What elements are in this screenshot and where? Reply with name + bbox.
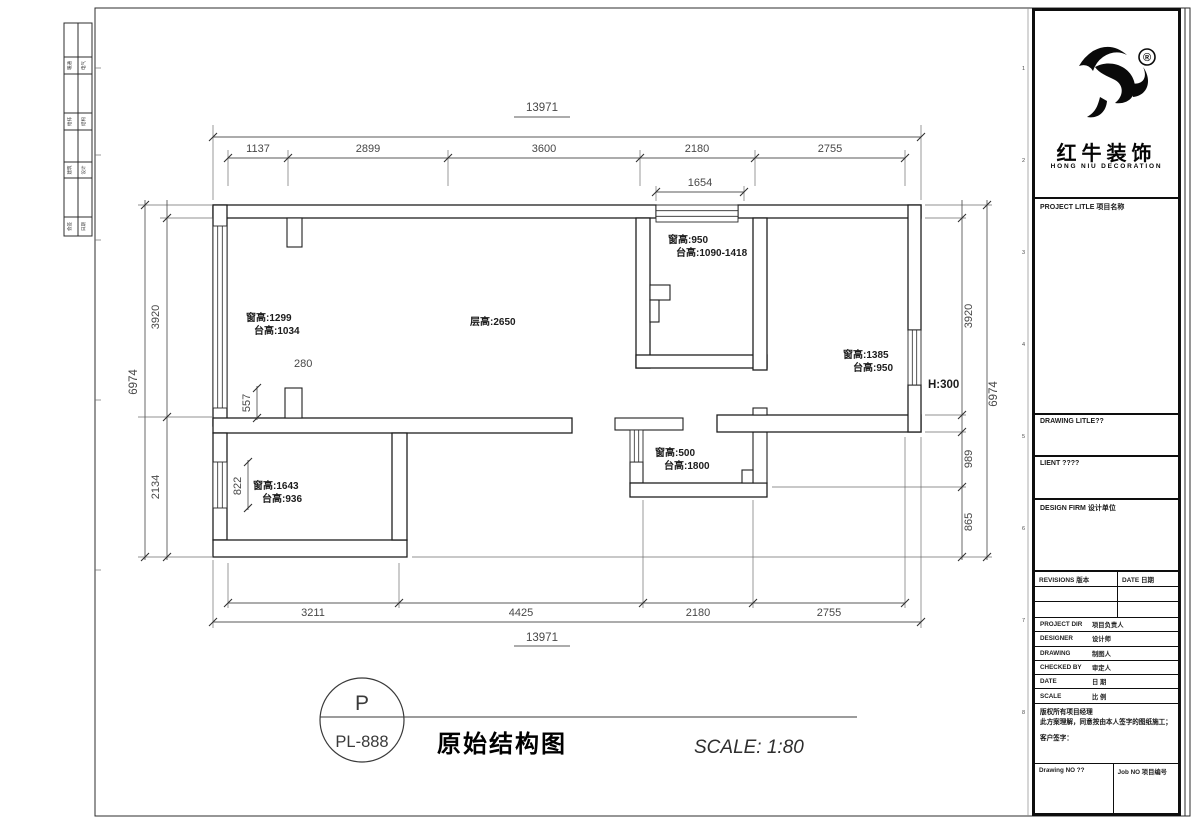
footer: P PL-888 原始结构图 SCALE: 1:80 — [320, 678, 857, 762]
dim-bottom-overall: 13971 — [526, 632, 558, 644]
dim-right-inner: 989 — [963, 450, 975, 468]
registered-mark: ® — [1143, 52, 1151, 64]
floor-plan-walls — [213, 205, 921, 557]
edge-number: 8 — [1022, 710, 1025, 716]
dim-left-inner: 2134 — [150, 475, 162, 499]
dim-top-seg: 2899 — [356, 143, 380, 155]
personnel-row: PROJECT DIR 项目负责人 — [1035, 617, 1178, 631]
annotation-sill: 台高:1090-1418 — [676, 246, 748, 259]
personnel-label-en: PROJECT DIR — [1035, 621, 1092, 628]
page: { "sheet": { "edge_numbers": ["1","2","3… — [0, 0, 1200, 824]
personnel-label-en: SCALE — [1035, 693, 1092, 700]
personnel-row: DATE 日 期 — [1035, 674, 1178, 688]
personnel-row: DRAWING 制图人 — [1035, 646, 1178, 660]
dim-bottom-seg: 4425 — [509, 607, 533, 619]
dimensions-left: 3920 2134 6974 — [128, 200, 212, 561]
strip-cell: 暖通 — [66, 61, 73, 70]
personnel-label-cn: 日 期 — [1092, 677, 1178, 686]
annotation-sill: 台高:936 — [262, 492, 302, 505]
window-symbol-left-upper — [213, 226, 227, 408]
dim-top-seg: 3600 — [532, 143, 556, 155]
personnel-label-en: DRAWING — [1035, 650, 1092, 657]
brand-name-en: HONG NIU DECORATION — [1035, 163, 1178, 170]
strip-cell: 给排 — [66, 117, 73, 126]
bull-logo-icon: ® — [1055, 45, 1165, 130]
strip-cell: 建筑 — [66, 165, 73, 174]
revisions-date-header: DATE 日期 — [1118, 572, 1178, 586]
stair-step — [650, 300, 659, 322]
window-symbol-top — [656, 205, 738, 222]
personnel-label-cn: 设计师 — [1092, 634, 1178, 643]
personnel-label-en: DESIGNER — [1035, 635, 1092, 642]
annotation-window: 窗高:1299 — [246, 311, 292, 324]
plan-annotations: 窗高:1299 台高:1034 层高:2650 窗高:950 台高:1090-1… — [246, 233, 959, 505]
dim-left-inner: 3920 — [150, 305, 162, 329]
title-mark-letter: P — [355, 692, 369, 715]
drawing-title-section: DRAWING LITLE?? — [1035, 413, 1178, 455]
annotation-window: 窗高:950 — [668, 233, 708, 246]
drawing-canvas: 暖通 电气 给排 结构 建筑 设计 会签 日期 1 2 3 4 5 6 7 8 — [0, 0, 1200, 824]
drawing-number-row: Drawing NO ?? Job NO 项目编号 — [1035, 763, 1178, 813]
dim-top-overall: 13971 — [526, 102, 558, 114]
revision-row-empty — [1035, 602, 1118, 617]
revisions-header: REVISIONS 版本 — [1035, 572, 1118, 586]
strip-cell: 会签 — [66, 222, 73, 231]
dim-top-sub: 1654 — [688, 177, 712, 189]
dim-bottom-seg: 2180 — [686, 607, 710, 619]
edge-number: 4 — [1022, 342, 1025, 348]
dim-right-outer: 6974 — [988, 381, 1000, 407]
dim-bottom-seg: 2755 — [817, 607, 841, 619]
copyright-line1: 版权所有项目经理 — [1040, 708, 1173, 718]
annotation-sill: 台高:1800 — [664, 459, 710, 472]
job-no: Job NO 项目编号 — [1114, 764, 1178, 813]
window-symbol-left-lower — [213, 462, 227, 508]
personnel-label-en: DATE — [1035, 678, 1092, 685]
personnel-label-cn: 制图人 — [1092, 649, 1178, 658]
project-title-section: PROJECT LITLE 项目名称 — [1035, 197, 1178, 413]
windows — [213, 205, 921, 508]
annotation-window: 窗高:1643 — [253, 479, 299, 492]
annotation-sill: 台高:1034 — [254, 324, 300, 337]
revisions-table: REVISIONS 版本 DATE 日期 — [1035, 570, 1178, 617]
dim-right-inner: 3920 — [963, 304, 975, 328]
edge-number: 7 — [1022, 618, 1025, 624]
client-section: LIENT ???? — [1035, 455, 1178, 498]
personnel-label-cn: 项目负责人 — [1092, 620, 1178, 629]
personnel-label-cn: 审定人 — [1092, 663, 1178, 672]
edge-number: 1 — [1022, 66, 1025, 72]
copyright-line2: 此方案理解，同意按由本人签字的图纸施工； — [1040, 718, 1173, 728]
side-strip: 暖通 电气 给排 结构 建筑 设计 会签 日期 — [64, 23, 92, 236]
window-symbol-bath — [630, 430, 643, 462]
strip-cell: 结构 — [80, 117, 87, 126]
personnel-label-en: CHECKED BY — [1035, 664, 1092, 671]
annotation-sill: 台高:950 — [853, 361, 893, 374]
brand-area: ® 红牛装饰 HONG NIU DECORATION — [1035, 11, 1178, 197]
dim-left-outer: 6974 — [128, 369, 140, 395]
copyright-note: 版权所有项目经理 此方案理解，同意按由本人签字的图纸施工； 客户签字： — [1035, 703, 1178, 763]
strip-cell: 电气 — [80, 61, 86, 70]
title-block: ® 红牛装饰 HONG NIU DECORATION PROJECT LITLE… — [1032, 8, 1181, 816]
dimensions-top: 13971 1137 2899 3600 2180 2755 1654 — [209, 102, 925, 201]
scale-label: SCALE: 1:80 — [694, 737, 804, 758]
personnel-row: CHECKED BY 审定人 — [1035, 660, 1178, 674]
drawing-no: Drawing NO ?? — [1035, 764, 1114, 813]
drawing-title: 原始结构图 — [437, 730, 567, 758]
annotation-window: 窗高:500 — [655, 446, 695, 459]
dim-right-inner: 865 — [963, 513, 975, 531]
annotation-ceiling: 层高:2650 — [470, 315, 516, 328]
brand-name-cn: 红牛装饰 — [1035, 137, 1178, 166]
annotation-height: H:300 — [928, 379, 959, 391]
strip-cell: 设计 — [80, 165, 87, 174]
dim-interior-822: 822 — [232, 477, 244, 495]
strip-cell: 日期 — [81, 222, 87, 231]
stair-step — [650, 285, 670, 300]
edge-number: 6 — [1022, 526, 1025, 532]
edge-number: 2 — [1022, 158, 1025, 164]
dim-top-seg: 2180 — [685, 143, 709, 155]
window-symbol-right — [908, 330, 921, 385]
dim-top-seg: 2755 — [818, 143, 842, 155]
personnel-row: DESIGNER 设计师 — [1035, 631, 1178, 645]
dim-interior-557: 557 — [241, 394, 253, 412]
edge-number: 3 — [1022, 250, 1025, 256]
personnel-row: SCALE 比 例 — [1035, 688, 1178, 702]
dim-bottom-seg: 3211 — [301, 607, 325, 619]
personnel-label-cn: 比 例 — [1092, 692, 1178, 701]
annotation-window: 窗高:1385 — [843, 348, 889, 361]
signature-label: 客户签字： — [1040, 734, 1173, 744]
dim-top-seg: 1137 — [246, 143, 270, 155]
sheet-frame — [95, 8, 1190, 816]
design-firm-section: DESIGN FIRM 设计单位 — [1035, 498, 1178, 570]
edge-numbers: 1 2 3 4 5 6 7 8 — [1022, 66, 1025, 716]
dim-interior-280: 280 — [294, 358, 312, 370]
title-mark-code: PL-888 — [335, 733, 388, 751]
revision-row-empty — [1035, 587, 1118, 601]
edge-number: 5 — [1022, 434, 1025, 440]
